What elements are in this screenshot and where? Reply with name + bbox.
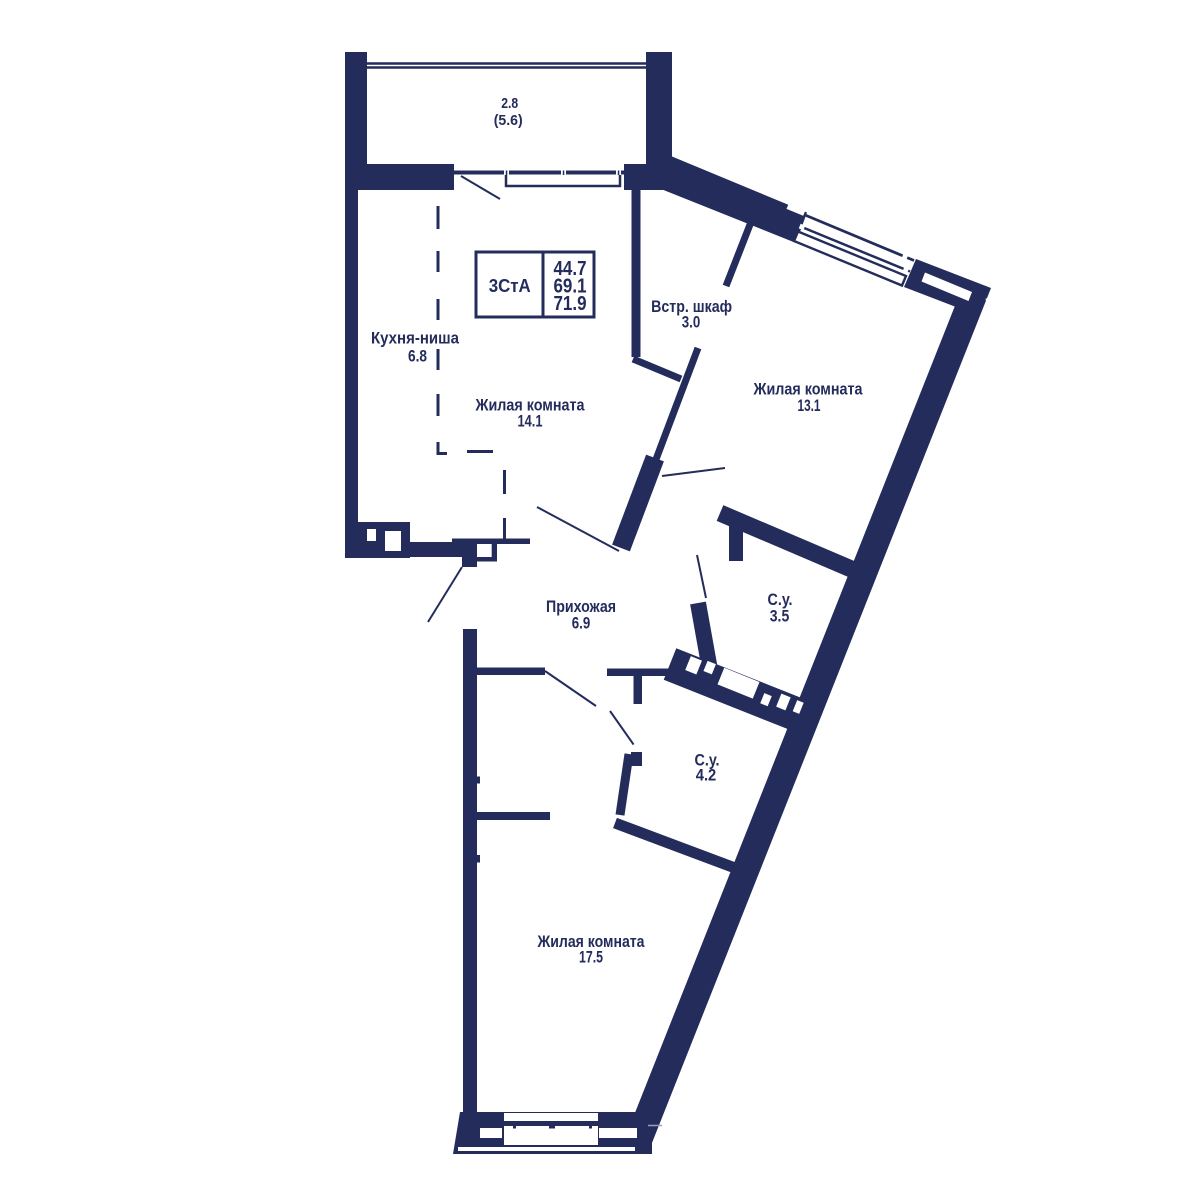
svg-text:4.2: 4.2 bbox=[696, 767, 717, 785]
svg-text:3.5: 3.5 bbox=[770, 608, 790, 626]
svg-text:6.8: 6.8 bbox=[408, 348, 427, 366]
svg-text:3.0: 3.0 bbox=[682, 314, 701, 332]
svg-text:Прихожая: Прихожая bbox=[546, 598, 616, 616]
svg-text:71.9: 71.9 bbox=[554, 293, 587, 315]
svg-text:14.1: 14.1 bbox=[518, 413, 543, 431]
svg-text:6.9: 6.9 bbox=[572, 615, 591, 633]
svg-text:(5.6): (5.6) bbox=[494, 112, 523, 129]
svg-text:Кухня-ниша: Кухня-ниша bbox=[371, 330, 460, 348]
svg-text:17.5: 17.5 bbox=[579, 949, 603, 967]
svg-text:3СтА: 3СтА bbox=[489, 275, 531, 296]
svg-text:Жилая комната: Жилая комната bbox=[753, 381, 864, 399]
svg-text:2.8: 2.8 bbox=[501, 95, 518, 112]
svg-text:13.1: 13.1 bbox=[798, 397, 821, 415]
svg-text:С.у.: С.у. bbox=[768, 591, 793, 609]
